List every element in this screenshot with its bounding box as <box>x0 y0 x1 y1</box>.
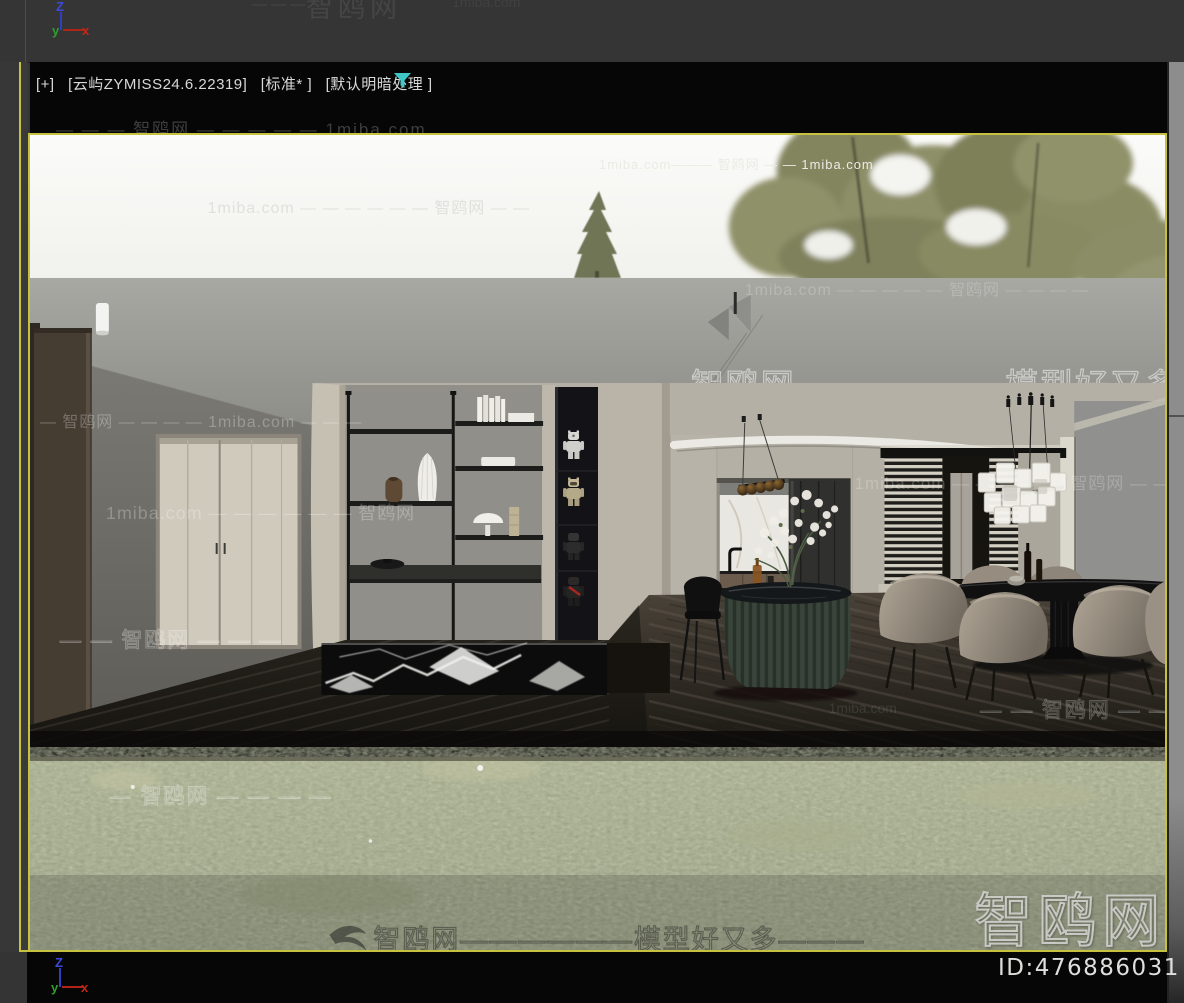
axis-y-label: y <box>51 980 59 995</box>
axis-gizmo-top: Z y x <box>46 0 94 44</box>
right-strip-edge <box>1167 62 1169 1003</box>
right-strip-divider <box>1169 415 1184 417</box>
viewport-pov-menu[interactable]: [+] <box>36 76 55 93</box>
top-strip: — — — 智鸥网 1miba.com Z y x <box>0 0 1184 63</box>
viewport-camera-menu[interactable]: [云屿ZYMISS24.6.22319] <box>68 76 247 93</box>
watermark-bar-row: — — — 智鸥网 — — — — — 1miba.com <box>56 115 427 135</box>
viewport-gutter <box>21 62 28 952</box>
axis-z-label: Z <box>55 956 63 970</box>
viewport-shading-menu[interactable]: [默认明暗处理 ] <box>326 76 433 93</box>
watermark-top-partial: 智鸥网 <box>306 0 402 25</box>
render-scene: 1miba.com — — — — — — 智鸥网 — — 1miba.com—… <box>30 135 1167 951</box>
viewport-style-menu[interactable]: [标准* ] <box>261 76 312 93</box>
axis-gizmo-bottom: Z y x <box>46 956 94 1002</box>
max-window: — — — 智鸥网 1miba.com Z y x [+] [云屿ZYMISS2… <box>0 0 1184 1003</box>
viewport-canvas[interactable]: 1miba.com — — — — — — 智鸥网 — — 1miba.com—… <box>30 135 1167 951</box>
model-id-badge: ID:476886031 <box>998 955 1180 981</box>
axis-x-label: x <box>82 23 90 38</box>
bottom-left-margin <box>0 952 27 1003</box>
right-strip <box>1167 62 1184 1003</box>
marble-plinth <box>321 643 669 695</box>
axis-y-label: y <box>52 23 60 38</box>
panel-divider <box>25 0 26 62</box>
bottom-strip <box>27 952 1167 1003</box>
watermark-top-dashes: — — — <box>252 0 305 13</box>
axis-z-label: Z <box>56 0 64 14</box>
decor-jar-brown <box>385 478 402 502</box>
filter-funnel-icon[interactable] <box>393 72 413 90</box>
left-margin <box>0 62 19 1003</box>
decor-box <box>481 457 515 466</box>
decor-candlestick <box>509 507 519 536</box>
watermark-top-site: 1miba.com <box>452 0 520 10</box>
axis-x-label: x <box>81 980 89 995</box>
renderframe-border-top <box>28 133 1168 135</box>
viewport-label-bar: [+] [云屿ZYMISS24.6.22319] [标准* ] [默认明暗处理 … <box>30 62 1168 135</box>
